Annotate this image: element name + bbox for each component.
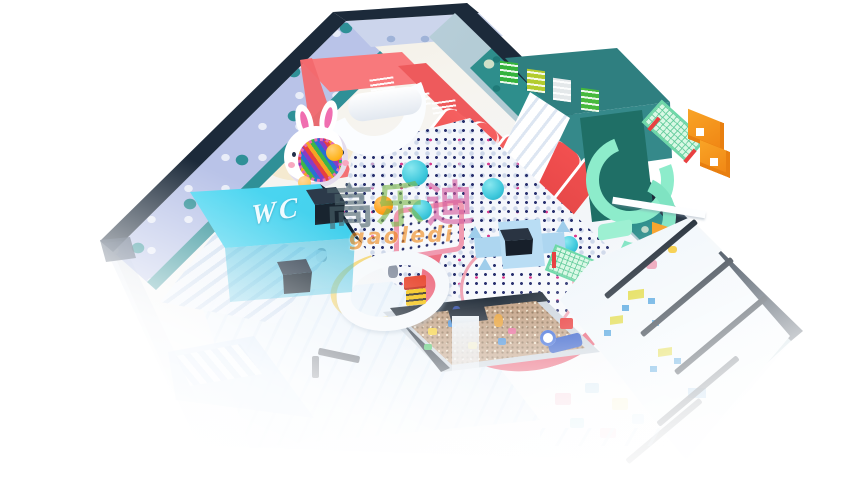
soft-block	[570, 418, 584, 428]
block-track	[540, 428, 660, 446]
soft-block	[632, 414, 644, 424]
playground-3d-render: WC 高乐迪 gaoledi	[0, 0, 850, 500]
soft-block	[612, 398, 628, 410]
soft-block	[555, 393, 571, 405]
block-play-area	[0, 0, 850, 500]
soft-block	[585, 383, 599, 393]
watermark: 高乐迪 gaoledi	[285, 178, 517, 253]
